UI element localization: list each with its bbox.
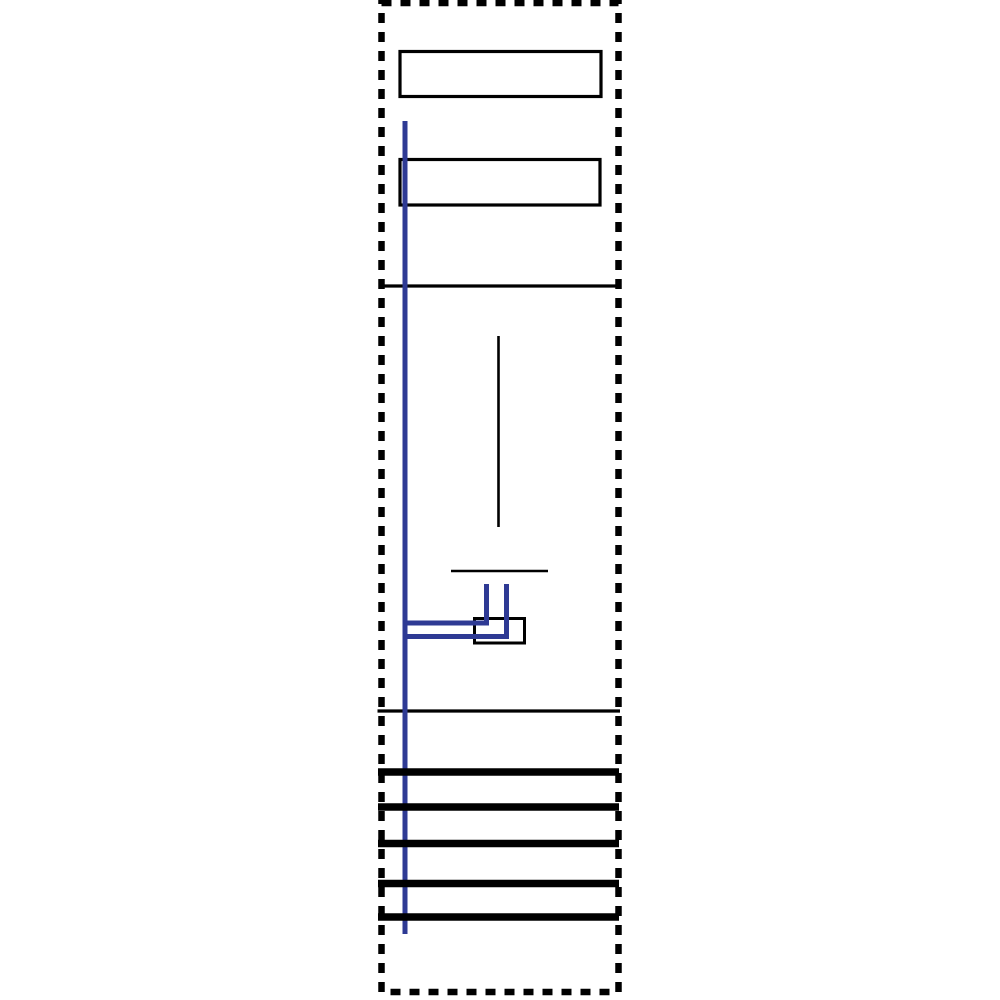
schematic — [0, 0, 1000, 1000]
busbar-layer — [378, 772, 619, 917]
label-boxes-layer — [400, 52, 601, 644]
black-lines-layer — [378, 286, 621, 711]
label-box-top — [400, 52, 601, 97]
label-box-middle — [400, 160, 600, 206]
schematic-canvas — [0, 0, 1000, 1000]
blue-conductor-layer — [403, 121, 510, 934]
